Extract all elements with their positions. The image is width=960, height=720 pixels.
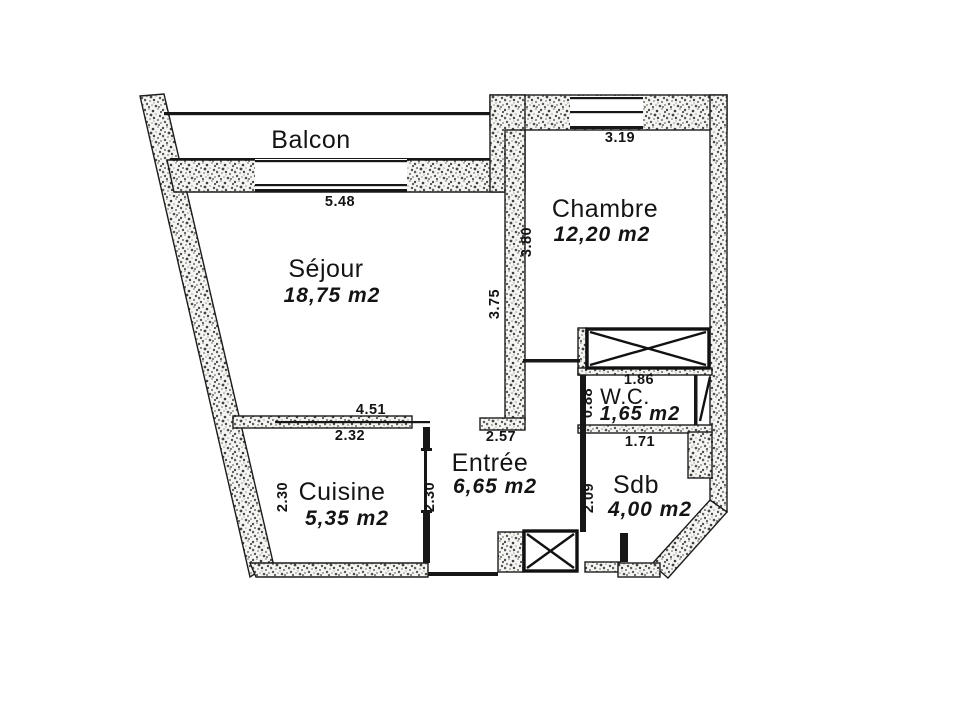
sdb-area: 4,00 m2 [607, 498, 692, 521]
dim-sdb-top: 1.71 [625, 434, 655, 450]
dim-sejour-right: 3.75 [487, 289, 503, 319]
wall-bottom-right [618, 563, 660, 577]
balcony-top-line [164, 112, 490, 115]
dim-sejour-bottom: 4.51 [356, 402, 386, 418]
dim-cuisine-right: 2.30 [422, 482, 438, 512]
sdb-label: Sdb [613, 471, 659, 499]
dim-cuisine-left: 2.30 [275, 482, 291, 512]
dim-sejour-top: 5.48 [325, 194, 355, 210]
dim-wc-left: 0.88 [580, 388, 596, 418]
dim-wc-top: 1.86 [624, 372, 654, 388]
cuisine-door-jamb-top [421, 448, 432, 451]
cuisine-area: 5,35 m2 [305, 507, 389, 530]
wall-cuisine-bottom [250, 563, 428, 577]
wall-entry-block [498, 532, 523, 572]
floor-plan-drawing: Balcon Séjour 18,75 m2 Chambre 12,20 m2 … [0, 0, 960, 720]
entree-label: Entrée [452, 449, 529, 477]
wall-sdb-bottom-left [585, 562, 620, 572]
chambre-window-icon [570, 96, 643, 129]
floor-plan-page: Balcon Séjour 18,75 m2 Chambre 12,20 m2 … [0, 0, 960, 720]
cuisine-top-line [275, 421, 430, 423]
chambre-label: Chambre [552, 195, 658, 223]
cuisine-label: Cuisine [299, 478, 386, 506]
chambre-area: 12,20 m2 [554, 223, 651, 246]
wall-middle-vertical [505, 130, 525, 420]
dim-chambre-top: 3.19 [605, 130, 635, 146]
dim-entree-top: 2.57 [486, 429, 516, 445]
balcon-label: Balcon [271, 126, 350, 154]
dim-chambre-left: 3.80 [519, 227, 535, 257]
chambre-bottom-line [523, 359, 580, 363]
wc-door-leaf [700, 377, 710, 421]
entree-area: 6,65 m2 [453, 475, 537, 498]
wall-sdb-pillar [688, 432, 712, 478]
sejour-area: 18,75 m2 [284, 284, 381, 307]
cuisine-right-wall-upper [423, 427, 430, 450]
dim-sdb-left: 2.09 [581, 483, 597, 513]
sejour-window-icon [255, 159, 407, 192]
dim-cuisine-top: 2.32 [335, 428, 365, 444]
cuisine-right-wall-lower [423, 512, 430, 563]
entry-threshold-line [428, 572, 498, 576]
closet-box-icon [587, 329, 709, 368]
wc-right-line [694, 375, 698, 425]
sejour-label: Séjour [288, 255, 363, 283]
sdb-door-stub [620, 533, 628, 562]
entry-box-icon [524, 531, 577, 571]
wc-area: 1,65 m2 [600, 403, 680, 425]
